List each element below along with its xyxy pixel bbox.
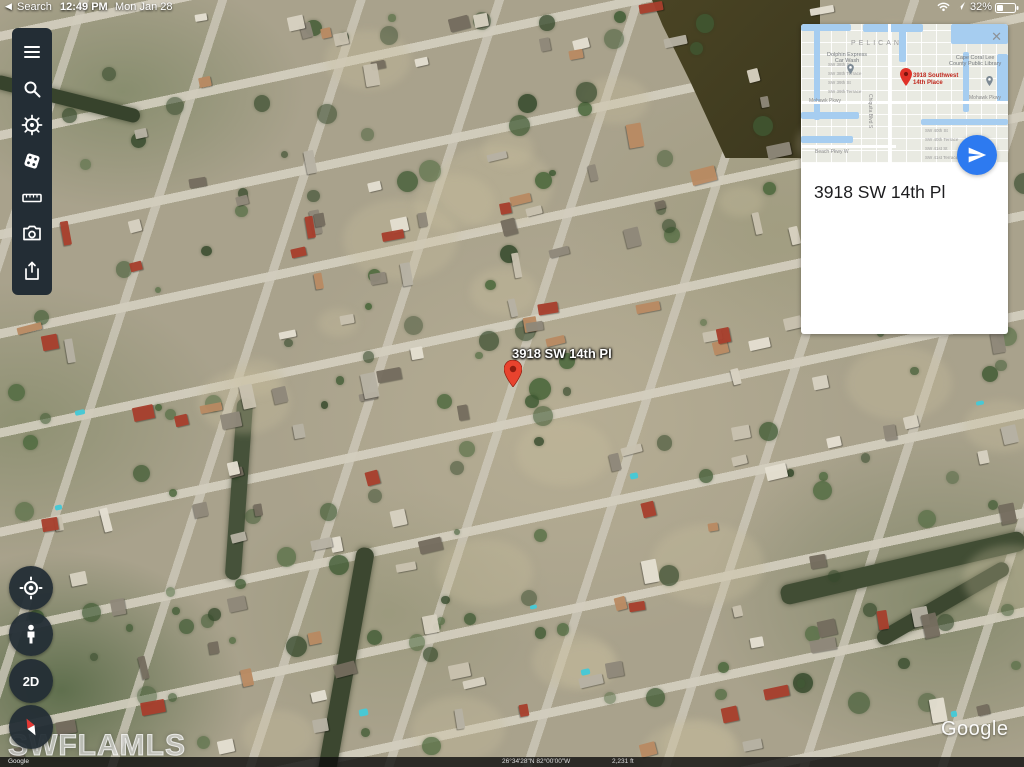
house	[609, 452, 622, 470]
elevation-readout: 2,231 ft	[612, 757, 634, 767]
house	[750, 636, 764, 648]
pool	[359, 708, 369, 716]
tree	[179, 619, 194, 634]
attribution-google: Google	[8, 757, 29, 767]
mini-map-road-label: Beach Pkwy W	[815, 149, 849, 155]
house	[751, 212, 763, 235]
tree	[168, 693, 178, 703]
tree	[576, 82, 596, 102]
tree	[988, 500, 998, 510]
tree	[397, 171, 419, 193]
house	[310, 537, 332, 551]
tree	[454, 529, 460, 535]
google-earth-app: ◀ Search 12:49 PM Mon Jan 28 32%	[0, 0, 1024, 767]
house	[526, 321, 544, 333]
send-button[interactable]	[957, 135, 997, 175]
house	[623, 227, 642, 249]
house	[730, 367, 741, 385]
tree	[321, 401, 328, 408]
tree	[441, 596, 449, 604]
house	[613, 596, 627, 611]
house	[731, 424, 752, 441]
house	[41, 516, 59, 531]
house	[410, 346, 424, 360]
tree	[534, 437, 544, 447]
tree	[317, 104, 337, 124]
tree	[423, 647, 438, 662]
back-to-search-link[interactable]: Search	[17, 1, 52, 13]
tree	[133, 465, 150, 482]
tree	[80, 159, 90, 169]
mini-map-red-pin-icon	[900, 68, 912, 86]
house	[363, 63, 380, 86]
share-icon[interactable]	[18, 257, 46, 285]
tree	[535, 627, 546, 638]
poi-pin-icon	[847, 64, 854, 74]
house	[977, 449, 990, 464]
tree	[365, 303, 372, 310]
search-icon[interactable]	[18, 75, 46, 103]
tree	[286, 636, 307, 657]
send-icon	[967, 145, 987, 165]
tree	[155, 404, 162, 411]
tree	[1001, 604, 1014, 617]
earth-toolbar	[12, 28, 52, 295]
tree	[604, 692, 616, 704]
mini-map-water	[801, 24, 851, 31]
tree	[1014, 173, 1024, 194]
house	[716, 327, 732, 344]
dirt-patch	[516, 420, 611, 486]
tree	[277, 547, 296, 566]
house	[663, 35, 687, 48]
house	[760, 96, 770, 109]
house	[604, 661, 624, 679]
tree	[409, 634, 425, 650]
house	[216, 739, 235, 756]
tree	[937, 614, 954, 631]
tree	[102, 67, 117, 82]
house	[209, 641, 221, 655]
house	[396, 561, 418, 572]
house	[307, 631, 322, 646]
house	[333, 660, 357, 678]
poi-pin-icon	[986, 76, 993, 86]
tree	[8, 384, 25, 401]
tree	[201, 246, 211, 256]
house	[64, 338, 76, 363]
house	[312, 718, 329, 734]
tree	[848, 692, 870, 714]
house	[129, 261, 142, 272]
status-bar: ◀ Search 12:49 PM Mon Jan 28 32%	[0, 0, 1024, 15]
house	[60, 221, 72, 246]
house	[198, 76, 211, 88]
tree	[155, 287, 161, 293]
tree	[15, 502, 34, 521]
tree	[361, 128, 373, 140]
my-location-button[interactable]	[9, 566, 53, 610]
tree	[763, 182, 776, 195]
tree	[307, 190, 319, 202]
tree	[235, 205, 247, 217]
tree	[813, 481, 832, 500]
dirt-patch	[242, 710, 315, 761]
house	[41, 334, 59, 352]
house	[422, 614, 440, 634]
mini-map-street-label: SW 41st Terrace	[925, 155, 958, 160]
mini-map-street-label: SW 40th Terrace	[925, 137, 958, 142]
house	[689, 166, 717, 187]
house	[731, 454, 747, 466]
house	[189, 177, 207, 189]
tree	[690, 42, 703, 55]
tree	[40, 413, 51, 424]
house	[537, 301, 559, 315]
tree	[329, 555, 349, 575]
house	[140, 699, 165, 716]
mini-map-poi-library: Cape Coral LeeCounty Public Library	[949, 55, 1001, 67]
mini-map-street-label: SW 38th Terrace	[828, 71, 861, 76]
tree	[1011, 661, 1021, 671]
dirt-patch	[483, 131, 534, 167]
tree	[982, 366, 999, 383]
tree	[126, 624, 133, 631]
menu-icon[interactable]	[18, 38, 46, 66]
tree	[380, 26, 398, 44]
mini-map-water	[921, 119, 1008, 125]
tree	[254, 95, 270, 111]
house	[369, 272, 386, 285]
battery-icon	[995, 3, 1019, 13]
tree	[284, 339, 292, 347]
feeling-lucky-icon[interactable]	[18, 147, 46, 175]
tree	[863, 603, 878, 618]
attribution-bar: Google 26°34'28"N 82°00'00"W 2,231 ft	[0, 757, 1024, 767]
tree	[797, 679, 805, 687]
house	[748, 337, 771, 351]
tree	[388, 14, 395, 21]
house	[227, 595, 248, 613]
house	[367, 180, 382, 192]
dirt-patch	[963, 545, 1024, 613]
2d-toggle-label: 2D	[23, 674, 40, 689]
house	[549, 245, 570, 257]
house	[826, 436, 842, 449]
mini-map-water	[863, 24, 923, 32]
voyager-icon[interactable]	[18, 111, 46, 139]
mini-map-road-label: Mohawk Pkwy	[969, 95, 1001, 101]
clock-time: 12:49 PM	[60, 1, 108, 13]
tree	[422, 737, 440, 755]
house	[1000, 424, 1018, 444]
house	[976, 704, 990, 716]
pool	[950, 710, 957, 718]
house	[418, 536, 443, 554]
house	[812, 375, 830, 391]
house	[231, 531, 248, 543]
house	[110, 598, 127, 616]
tree	[368, 489, 382, 503]
dirt-patch	[470, 268, 537, 315]
tree	[437, 394, 452, 409]
house	[376, 367, 402, 383]
tree	[208, 608, 221, 621]
tree	[450, 461, 464, 475]
tree	[336, 376, 345, 385]
tree	[533, 406, 553, 426]
tree	[475, 352, 482, 359]
dirt-patch	[846, 346, 952, 420]
house	[519, 704, 530, 718]
tree	[696, 14, 714, 32]
house	[193, 501, 209, 518]
tree	[229, 637, 236, 644]
tree	[197, 736, 210, 749]
house	[69, 571, 87, 587]
mini-map-road-label: Chiquita Blvd S	[867, 94, 873, 128]
house	[290, 247, 306, 259]
house	[137, 656, 150, 680]
dirt-patch	[437, 539, 533, 606]
mini-map-street-label: SW 39th St	[828, 80, 851, 85]
tree	[918, 510, 936, 528]
measure-icon[interactable]	[18, 184, 46, 212]
house	[462, 676, 485, 689]
pool	[54, 504, 62, 511]
house	[620, 443, 642, 456]
tree	[62, 108, 76, 122]
tree	[604, 29, 624, 49]
map-pin[interactable]	[504, 360, 522, 387]
tree	[367, 630, 382, 645]
map-pin-label: 3918 SW 14th Pl	[512, 346, 612, 361]
house	[628, 601, 645, 613]
tree	[819, 472, 827, 480]
tree	[539, 15, 554, 30]
house	[720, 705, 739, 723]
tree	[946, 471, 959, 484]
mini-map-water	[814, 28, 820, 120]
house	[321, 27, 333, 39]
camera-icon[interactable]	[18, 220, 46, 248]
tree	[419, 160, 441, 182]
tree	[718, 662, 729, 673]
tree	[464, 613, 476, 625]
pool	[530, 605, 537, 611]
tree	[657, 435, 672, 450]
mini-map-road	[801, 145, 896, 148]
tree	[759, 422, 778, 441]
house	[17, 322, 43, 335]
house	[817, 618, 838, 638]
house	[310, 689, 326, 702]
house	[100, 507, 114, 532]
card-address: 3918 SW 14th Pl	[814, 182, 945, 203]
tree	[898, 658, 910, 670]
tree	[361, 728, 370, 737]
compass-button[interactable]	[9, 705, 53, 749]
house	[883, 425, 898, 442]
pool	[74, 409, 85, 416]
house	[448, 14, 470, 31]
house	[314, 213, 326, 228]
tree	[715, 689, 727, 701]
dirt-patch	[651, 524, 765, 603]
house	[998, 502, 1017, 524]
coordinates-readout: 26°34'28"N 82°00'00"W	[502, 757, 570, 767]
wifi-icon	[936, 1, 951, 12]
2d-toggle-button[interactable]: 2D	[9, 659, 53, 703]
tree	[479, 331, 498, 350]
house	[132, 404, 156, 422]
house	[641, 500, 657, 518]
tree	[172, 607, 180, 615]
house	[473, 13, 489, 28]
tree	[363, 351, 375, 363]
mini-map-water	[801, 136, 853, 143]
place-card: PELICAN Dolphin ExpressCar Wash Cape Cor…	[801, 24, 1008, 334]
house	[313, 272, 323, 289]
house	[626, 123, 645, 149]
house	[254, 504, 264, 518]
close-icon[interactable]: ✕	[991, 30, 1002, 43]
tree	[166, 97, 184, 115]
house	[364, 469, 380, 486]
tree	[166, 587, 175, 596]
street-view-button[interactable]	[9, 612, 53, 656]
tree	[518, 94, 537, 113]
pegman-icon	[20, 623, 42, 645]
house	[499, 202, 512, 215]
tree	[169, 489, 177, 497]
house	[457, 404, 470, 421]
tree	[90, 653, 98, 661]
house	[809, 554, 827, 569]
mini-map-road-label: Mohawk Pkwy	[809, 98, 841, 104]
tree	[646, 688, 665, 707]
tree	[404, 316, 423, 335]
house	[128, 219, 143, 234]
tree	[82, 603, 101, 622]
house	[789, 226, 802, 245]
tree	[235, 579, 246, 590]
tree	[534, 529, 547, 542]
house	[568, 49, 583, 60]
house	[742, 738, 762, 751]
house	[303, 150, 317, 174]
mini-map-water	[801, 112, 859, 119]
pool	[629, 472, 638, 479]
mini-map-street-label: SW 39th Terrace	[828, 89, 861, 94]
tree	[563, 387, 572, 396]
tree	[509, 115, 530, 136]
mini-map-street-label: SW 40th St	[925, 128, 948, 133]
house	[764, 463, 788, 482]
house	[240, 668, 254, 686]
house	[414, 57, 428, 67]
tree	[700, 319, 707, 326]
location-arrow-icon	[956, 1, 966, 11]
my-location-icon	[19, 576, 43, 600]
house	[539, 37, 551, 52]
house	[292, 423, 305, 439]
house	[635, 301, 660, 314]
mini-map-street-label: SW 41st St	[925, 146, 948, 151]
compass-icon	[19, 715, 43, 739]
tree	[753, 116, 773, 136]
tree	[525, 395, 539, 409]
tree	[910, 367, 918, 375]
house	[732, 604, 743, 617]
house	[174, 413, 189, 427]
house	[876, 610, 889, 631]
house	[763, 684, 790, 700]
house	[921, 612, 941, 638]
tree	[828, 570, 840, 582]
house	[389, 509, 407, 527]
mini-map-pin-label: 3918 Southwest14th Place	[913, 73, 958, 86]
tree	[699, 469, 713, 483]
google-logo: Google	[941, 718, 1009, 741]
battery-percent: 32%	[970, 1, 992, 13]
tree	[459, 441, 475, 457]
tree	[23, 435, 38, 450]
tree	[557, 623, 569, 635]
clock-date: Mon Jan 28	[115, 1, 172, 13]
tree	[657, 150, 673, 166]
house	[235, 195, 248, 206]
tree	[485, 280, 495, 290]
mini-map-area-label: PELICAN	[851, 40, 902, 47]
house	[766, 141, 792, 159]
house	[747, 68, 761, 83]
house	[587, 164, 598, 182]
house	[447, 662, 470, 680]
tree	[281, 151, 288, 158]
tree	[662, 219, 676, 233]
tree	[320, 503, 338, 521]
tree	[861, 453, 871, 463]
back-chevron-icon[interactable]: ◀	[5, 1, 12, 12]
